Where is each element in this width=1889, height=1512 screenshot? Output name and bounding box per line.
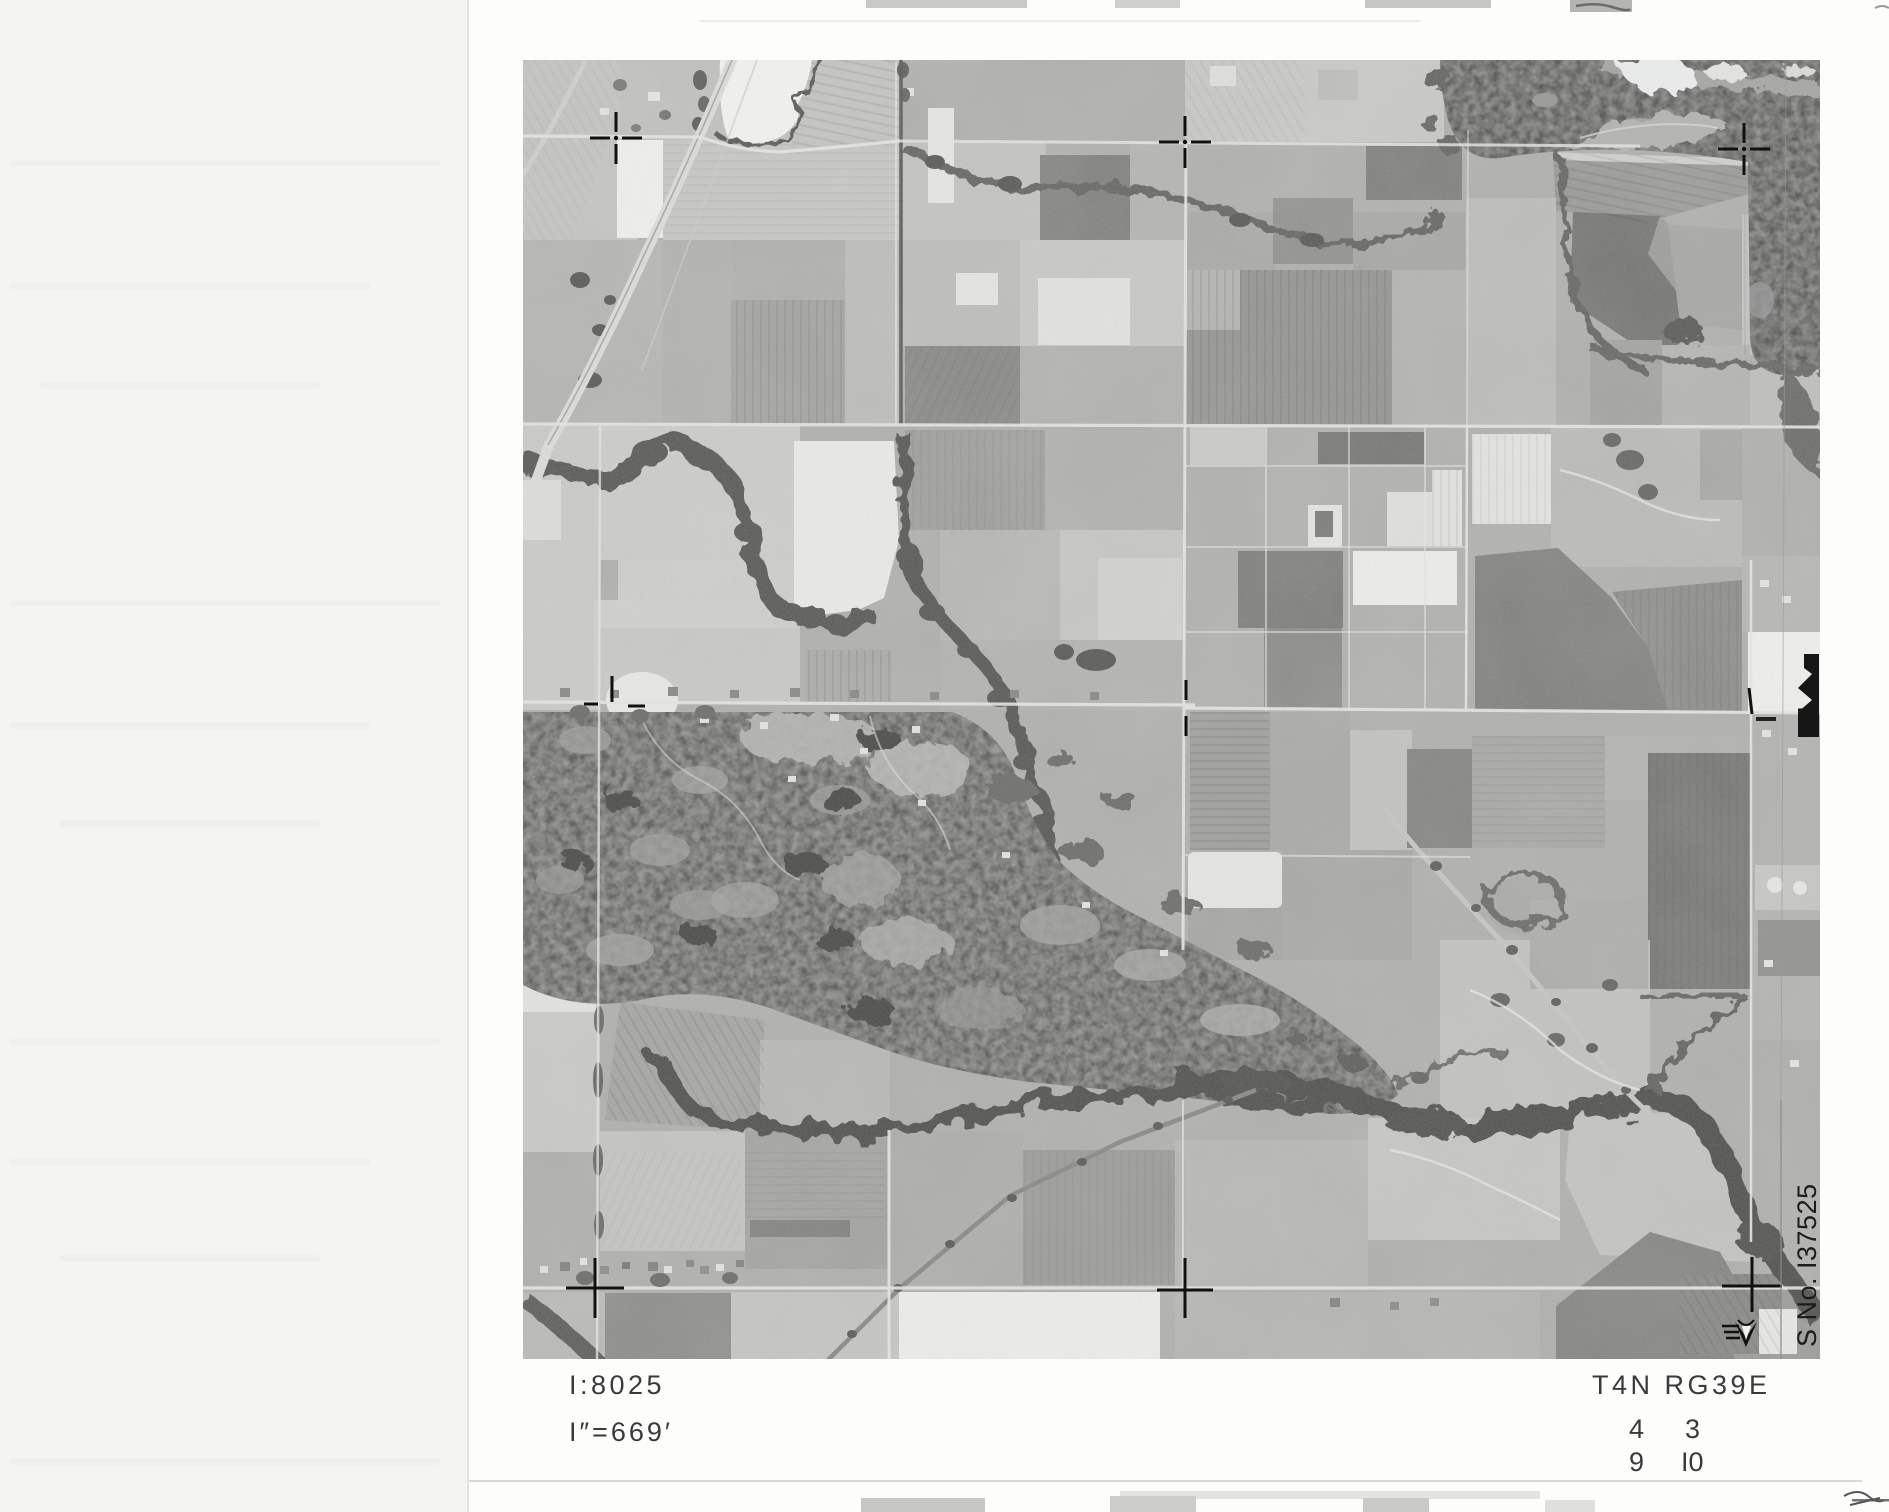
svg-text:9: 9 [1629,1447,1644,1477]
svg-text:4: 4 [1629,1414,1644,1444]
svg-text:I0: I0 [1681,1447,1704,1477]
svg-text:T4N RG39E: T4N RG39E [1592,1370,1771,1400]
svg-text:I″=669′: I″=669′ [569,1417,673,1447]
svg-text:3: 3 [1685,1414,1700,1444]
svg-text:S No. I37525: S No. I37525 [1792,1183,1822,1347]
svg-text:I:8025: I:8025 [569,1370,665,1400]
